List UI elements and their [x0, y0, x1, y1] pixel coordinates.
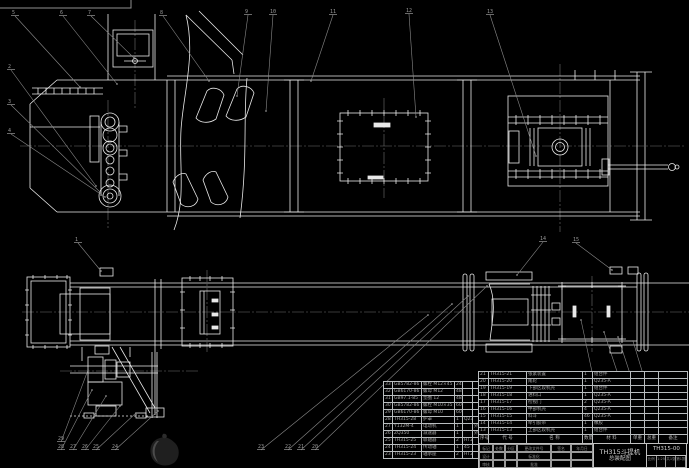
bom-cell: 组合件	[593, 372, 631, 379]
signature-cell	[493, 452, 505, 460]
signature-cell: 标记	[479, 444, 493, 452]
bom-cell: TH315-13	[489, 428, 527, 435]
bom-cell: 13	[479, 428, 489, 435]
leader-end-dot	[104, 196, 106, 198]
bom-cell	[645, 393, 659, 400]
top-view-drawing	[30, 11, 679, 230]
bom-cell: TH315-20	[489, 379, 527, 386]
leader-end-dot	[617, 336, 619, 338]
bom-cell: 30	[384, 403, 393, 410]
bom-cell: 传动轴	[422, 445, 455, 452]
balloon-number: 13	[487, 9, 493, 15]
balloon-number: 28	[58, 444, 64, 450]
bom-row: 27Y132M-4电动机1外购	[384, 424, 480, 431]
balloon-number: 25	[93, 444, 99, 450]
leader-end-dot	[119, 405, 121, 407]
bom-cell: 1	[583, 428, 593, 435]
balloon-number: 29	[58, 436, 64, 442]
bom-cell: 螺母 M10	[422, 410, 455, 417]
balloon-number: 9	[245, 9, 248, 15]
bom-cell: TH315-17	[489, 400, 527, 407]
bom-cell: 检视门	[527, 400, 583, 407]
balloon-leader-line	[15, 16, 80, 87]
leader-end-dot	[310, 80, 312, 82]
title-footer-cell: 第1张	[676, 456, 686, 467]
bom-cell: 32	[384, 389, 393, 396]
bom-cell	[659, 414, 688, 421]
signature-cell	[571, 452, 593, 460]
bom-left-body: 33GB5782-86螺栓 M12×452432GB6170-86螺母 M124…	[384, 382, 480, 459]
bom-cell: 26	[384, 431, 393, 438]
bom-cell: Q235-A	[463, 417, 473, 424]
balloon-number: 1	[75, 237, 78, 243]
bom-cell: 电动机	[422, 424, 455, 431]
bom-cell: TH315-18	[489, 393, 527, 400]
bom-cell: 1	[455, 431, 463, 438]
bom-cell: 4	[583, 407, 593, 414]
bom-cell	[463, 410, 473, 417]
bom-cell: 2	[583, 400, 593, 407]
bom-cell: 28	[384, 417, 393, 424]
signature-cell	[571, 460, 593, 468]
bom-cell: 垫圈 12	[422, 396, 455, 403]
balloon-leader-line	[409, 14, 416, 117]
bom-cell: 1	[583, 393, 593, 400]
bom-cell: 15	[479, 414, 489, 421]
bom-row: 20TH315-20尾轮1Q235-A	[479, 379, 688, 386]
balloon-number: 8	[160, 10, 163, 16]
leader-end-dot	[611, 269, 613, 271]
bom-cell: TH315-21	[489, 372, 527, 379]
bom-cell: 1	[583, 379, 593, 386]
signature-cell: 更改文件号	[517, 444, 551, 452]
bom-row: 32GB6170-86螺母 M1248	[384, 389, 480, 396]
bom-cell: 31	[384, 396, 393, 403]
bom-cell	[463, 403, 473, 410]
balloon-number: 23	[258, 444, 264, 450]
balloon-number: 12	[406, 8, 412, 14]
leader-end-dot	[79, 86, 81, 88]
signature-cell	[551, 460, 571, 468]
bom-cell: GB6170-86	[393, 410, 422, 417]
bom-cell: 1	[455, 424, 463, 431]
bom-cell: 联轴器	[422, 438, 455, 445]
bom-cell	[645, 407, 659, 414]
signature-cell: 批准	[517, 460, 551, 468]
leader-end-dot	[208, 80, 210, 82]
balloon-number: 6	[60, 10, 63, 16]
bom-cell: 1	[583, 386, 593, 393]
bom-row: 31GB97.1-85垫圈 1248	[384, 396, 480, 403]
bom-cell: 橡胶	[593, 421, 631, 428]
bom-cell	[631, 400, 645, 407]
bom-cell: 45	[463, 445, 473, 452]
bom-cell: GB5782-86	[393, 403, 422, 410]
bom-cell: GB97.1-85	[393, 396, 422, 403]
bom-cell: Q235-A	[593, 407, 631, 414]
document-type: 总装配图	[594, 456, 646, 463]
bom-cell	[645, 386, 659, 393]
bom-cell: 60	[455, 410, 463, 417]
bom-cell: 护罩	[422, 417, 455, 424]
bom-cell: 张紧装置	[527, 372, 583, 379]
bom-cell: 2	[455, 452, 463, 459]
balloon-leader-line	[517, 242, 543, 275]
watermark-logo	[150, 434, 178, 466]
bom-cell: 上部区段机壳	[527, 428, 583, 435]
bom-cell: Y132M-4	[393, 424, 422, 431]
leader-end-dot	[87, 369, 89, 371]
balloon-number: 7	[88, 10, 91, 16]
balloon-leader-line	[78, 243, 101, 271]
bom-cell: 33	[384, 382, 393, 389]
balloon-number: 15	[573, 237, 579, 243]
leader-end-dot	[100, 270, 102, 272]
title-footer-cells: 比例1:25共1张第1张	[647, 456, 686, 467]
leader-end-dot	[486, 285, 488, 287]
balloon-leader-line	[63, 16, 117, 84]
bom-cell: 组合件	[593, 386, 631, 393]
bom-cell: 组合件	[593, 428, 631, 435]
balloon-number: 14	[540, 236, 546, 242]
leader-end-dot	[535, 155, 537, 157]
bom-row: 14TH315-14牵引胶带1橡胶	[479, 421, 688, 428]
bom-cell: 2	[455, 438, 463, 445]
balloon-leader-line	[115, 411, 158, 450]
bom-cell: GB5782-86	[393, 382, 422, 389]
bom-cell: 1	[455, 417, 463, 424]
balloon-number: 26	[82, 444, 88, 450]
signature-cell: 处数	[493, 444, 505, 452]
bom-cell: 29	[384, 410, 393, 417]
signature-cell	[493, 460, 505, 468]
bom-cell: 21	[479, 372, 489, 379]
balloon-leader-line	[490, 15, 536, 156]
signature-cell: 签名	[551, 444, 571, 452]
balloon-number: 27	[70, 444, 76, 450]
bom-row: 17TH315-17检视门2Q235-A	[479, 400, 688, 407]
bom-cell	[659, 372, 688, 379]
balloon-number: 11	[330, 9, 336, 15]
bom-row: 21TH315-21张紧装置1组合件	[479, 372, 688, 379]
bom-cell	[645, 379, 659, 386]
bom-row: 19TH315-19下部区段机壳1组合件	[479, 386, 688, 393]
bom-cell: 螺栓 M10×35	[422, 403, 455, 410]
bom-cell	[659, 421, 688, 428]
balloon-leader-line	[266, 15, 273, 111]
product-name: TH315斗提机	[594, 448, 646, 456]
signature-cell	[551, 452, 571, 460]
balloon-leader-line	[311, 15, 333, 81]
bom-cell: HT200	[463, 452, 473, 459]
bom-cell: 1	[455, 445, 463, 452]
bom-row: 28TH315-28护罩1Q235-A	[384, 417, 480, 424]
balloon-number: 20	[312, 444, 318, 450]
bom-cell: 23	[384, 452, 393, 459]
signature-cell	[505, 460, 517, 468]
bom-cell: 1	[583, 372, 593, 379]
balloon-leader-line	[11, 70, 96, 186]
leader-end-dot	[580, 319, 582, 321]
balloon-leader-line	[576, 243, 612, 270]
title-block-right: TH315-00 比例1:25共1张第1张	[647, 444, 686, 467]
bom-cell	[631, 428, 645, 435]
leader-end-dot	[451, 303, 453, 305]
bom-row: 29GB6170-86螺母 M1060	[384, 410, 480, 417]
bom-cell: TH315-25	[393, 438, 422, 445]
bom-cell	[631, 414, 645, 421]
bom-cell	[659, 400, 688, 407]
centerlines	[20, 20, 689, 371]
balloon-number: 10	[270, 9, 276, 15]
bom-row: 25TH315-25联轴器2HT200	[384, 438, 480, 445]
balloon-number: 4	[8, 128, 11, 134]
bom-cell	[659, 407, 688, 414]
bom-cell: 中部机壳	[527, 407, 583, 414]
title-block: 标记处数分区更改文件号签名年月日设计标准化审核批准 TH315斗提机 总装配图 …	[478, 443, 687, 468]
bom-cell: 24	[455, 382, 463, 389]
bom-cell	[645, 400, 659, 407]
bom-row: 30GB5782-86螺栓 M10×3560	[384, 403, 480, 410]
bom-cell	[659, 386, 688, 393]
bom-cell	[631, 393, 645, 400]
signature-cell: 设计	[479, 452, 493, 460]
balloon-leader-line	[11, 105, 100, 192]
bom-row: 33GB5782-86螺栓 M12×4524	[384, 382, 480, 389]
bom-cell: 20	[479, 379, 489, 386]
bom-cell: 14	[479, 421, 489, 428]
leader-end-dot	[105, 395, 107, 397]
bom-row: 18TH315-18进料口1Q235-A	[479, 393, 688, 400]
bom-cell	[463, 396, 473, 403]
balloon-leader-line	[61, 390, 92, 450]
bom-cell	[463, 382, 473, 389]
bom-cell	[631, 372, 645, 379]
bom-cell	[645, 414, 659, 421]
bom-cell: Q235-A	[593, 379, 631, 386]
leader-end-dot	[157, 410, 159, 412]
balloon-number: 24	[112, 444, 118, 450]
bom-cell: TH315-15	[489, 414, 527, 421]
bom-row: 13TH315-13上部区段机壳1组合件	[479, 428, 688, 435]
leader-end-dot	[467, 295, 469, 297]
leader-end-dot	[632, 340, 634, 342]
leader-end-dot	[91, 389, 93, 391]
bom-cell: TH315-16	[489, 407, 527, 414]
bom-cell	[659, 428, 688, 435]
bom-cell	[463, 389, 473, 396]
signature-cell: 审核	[479, 460, 493, 468]
bom-row: 24TH315-24传动轴145	[384, 445, 480, 452]
title-footer-cell: 1:25	[657, 456, 667, 467]
balloon-leader-line	[11, 134, 105, 197]
bom-cell: 下部区段机壳	[527, 386, 583, 393]
bom-cell: 18	[479, 393, 489, 400]
leader-end-dot	[135, 412, 137, 414]
bom-cell: 16	[479, 407, 489, 414]
signature-grid: 标记处数分区更改文件号签名年月日设计标准化审核批准	[479, 444, 593, 467]
bom-cell: 减速器	[422, 431, 455, 438]
bom-cell: 24	[384, 445, 393, 452]
bom-row: 15TH315-15料斗46Q235-A	[479, 414, 688, 421]
bom-cell: 48	[455, 396, 463, 403]
bom-table-right: 21TH315-21张紧装置1组合件20TH315-20尾轮1Q235-A19T…	[478, 371, 688, 444]
balloon-leader-line	[91, 16, 134, 58]
bom-row: 23TH315-23轴承座2HT200	[384, 452, 480, 459]
bom-row: 16TH315-16中部机壳4Q235-A	[479, 407, 688, 414]
signature-cell: 年月日	[571, 444, 593, 452]
bom-cell: Q235-A	[593, 414, 631, 421]
leader-end-dot	[133, 57, 135, 59]
bom-cell: Q235-A	[593, 400, 631, 407]
leader-end-dot	[116, 83, 118, 85]
bom-cell: 60	[455, 403, 463, 410]
title-footer-cell: 共1张	[666, 456, 676, 467]
bom-cell: 进料口	[527, 393, 583, 400]
bom-cell: 料斗	[527, 414, 583, 421]
leader-end-dot	[603, 331, 605, 333]
title-footer-cell: 比例	[647, 456, 657, 467]
bom-cell: 17	[479, 400, 489, 407]
bom-cell	[659, 379, 688, 386]
signature-cell: 标准化	[517, 452, 551, 460]
bom-cell: 25	[384, 438, 393, 445]
balloon-leader-line	[73, 396, 106, 450]
balloon-number: 2	[8, 64, 11, 70]
bom-cell: Q235-A	[593, 393, 631, 400]
bom-cell: TH315-14	[489, 421, 527, 428]
bom-cell	[631, 421, 645, 428]
bom-cell: 螺栓 M12×45	[422, 382, 455, 389]
bom-right-body: 21TH315-21张紧装置1组合件20TH315-20尾轮1Q235-A19T…	[479, 372, 688, 444]
bom-cell: 尾轮	[527, 379, 583, 386]
cad-drawing-canvas: 5678910111213234114151617181920212223242…	[0, 0, 689, 468]
balloon-number: 22	[285, 444, 291, 450]
signature-cell: 分区	[505, 444, 517, 452]
bom-cell	[645, 372, 659, 379]
bom-cell: 轴承座	[422, 452, 455, 459]
balloon-number: 5	[12, 10, 15, 16]
leader-end-dot	[415, 116, 417, 118]
leader-end-dot	[265, 110, 267, 112]
bom-cell: 1	[583, 421, 593, 428]
leader-end-dot	[516, 274, 518, 276]
bom-cell: TH315-28	[393, 417, 422, 424]
bom-cell: 48	[455, 389, 463, 396]
bom-row: 26ZQ350减速器1外购	[384, 431, 480, 438]
signature-cell	[505, 452, 517, 460]
bom-cell	[631, 379, 645, 386]
bom-cell	[645, 421, 659, 428]
bom-cell: ZQ350	[393, 431, 422, 438]
bom-cell	[463, 424, 473, 431]
bom-cell: HT200	[463, 438, 473, 445]
leader-end-dot	[95, 185, 97, 187]
bom-cell: TH315-24	[393, 445, 422, 452]
bom-cell: 19	[479, 386, 489, 393]
leader-end-dot	[427, 314, 429, 316]
bom-cell: TH315-23	[393, 452, 422, 459]
balloon-leader-line	[163, 16, 209, 81]
bom-cell: 牵引胶带	[527, 421, 583, 428]
bom-cell: 螺母 M12	[422, 389, 455, 396]
bom-cell	[463, 431, 473, 438]
bom-table-left: 33GB5782-86螺栓 M12×452432GB6170-86螺母 M124…	[383, 381, 480, 459]
sheet-frame-corner	[0, 0, 131, 8]
drawing-number: TH315-00	[647, 444, 686, 456]
balloon-number: 21	[298, 444, 304, 450]
bom-cell	[631, 407, 645, 414]
bom-cell: 46	[583, 414, 593, 421]
bom-cell	[659, 393, 688, 400]
bom-cell	[645, 428, 659, 435]
balloon-number: 3	[8, 99, 11, 105]
bom-cell	[631, 386, 645, 393]
leader-end-dot	[99, 191, 101, 193]
title-block-center: TH315斗提机 总装配图	[593, 444, 647, 467]
bom-cell: GB6170-86	[393, 389, 422, 396]
bom-cell: 27	[384, 424, 393, 431]
leader-end-dot	[236, 95, 238, 97]
bom-cell: TH315-19	[489, 386, 527, 393]
